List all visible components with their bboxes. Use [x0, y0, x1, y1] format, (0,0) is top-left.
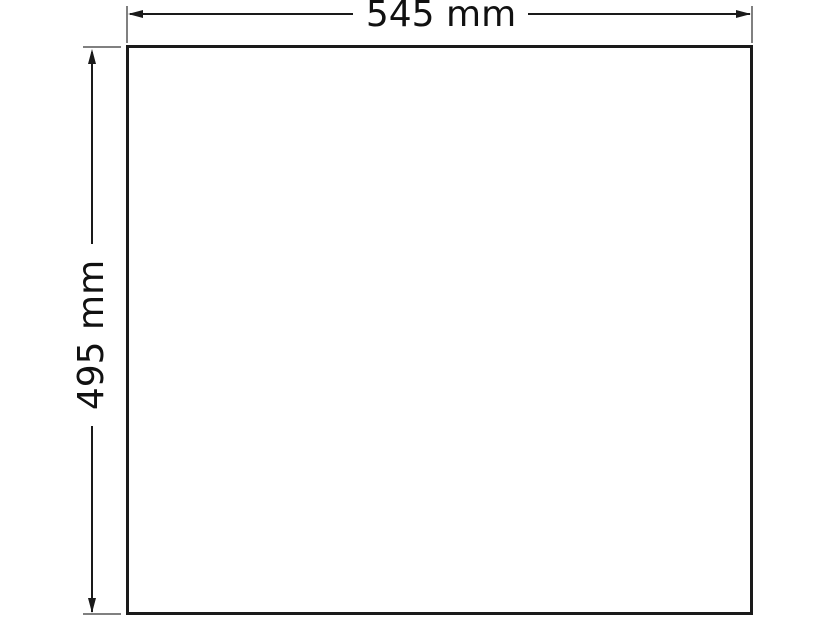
height-dimension-label: 495 mm [74, 260, 110, 410]
top-dimension-line-right-segment [528, 13, 750, 15]
left-dimension-line-top-segment [91, 52, 93, 244]
top-extension-line-right [751, 6, 753, 43]
panel-rectangle [126, 45, 753, 615]
dimension-diagram: 545 mm 495 mm [0, 0, 826, 620]
left-extension-line-top [83, 46, 121, 48]
width-dimension-label: 545 mm [366, 0, 516, 33]
left-extension-line-bottom [83, 613, 121, 615]
arrowhead-left-icon [128, 10, 143, 18]
top-dimension-line-left-segment [130, 13, 353, 15]
arrowhead-down-icon [88, 598, 96, 613]
left-dimension-line-bottom-segment [91, 426, 93, 612]
arrowhead-right-icon [736, 10, 751, 18]
arrowhead-up-icon [88, 49, 96, 64]
